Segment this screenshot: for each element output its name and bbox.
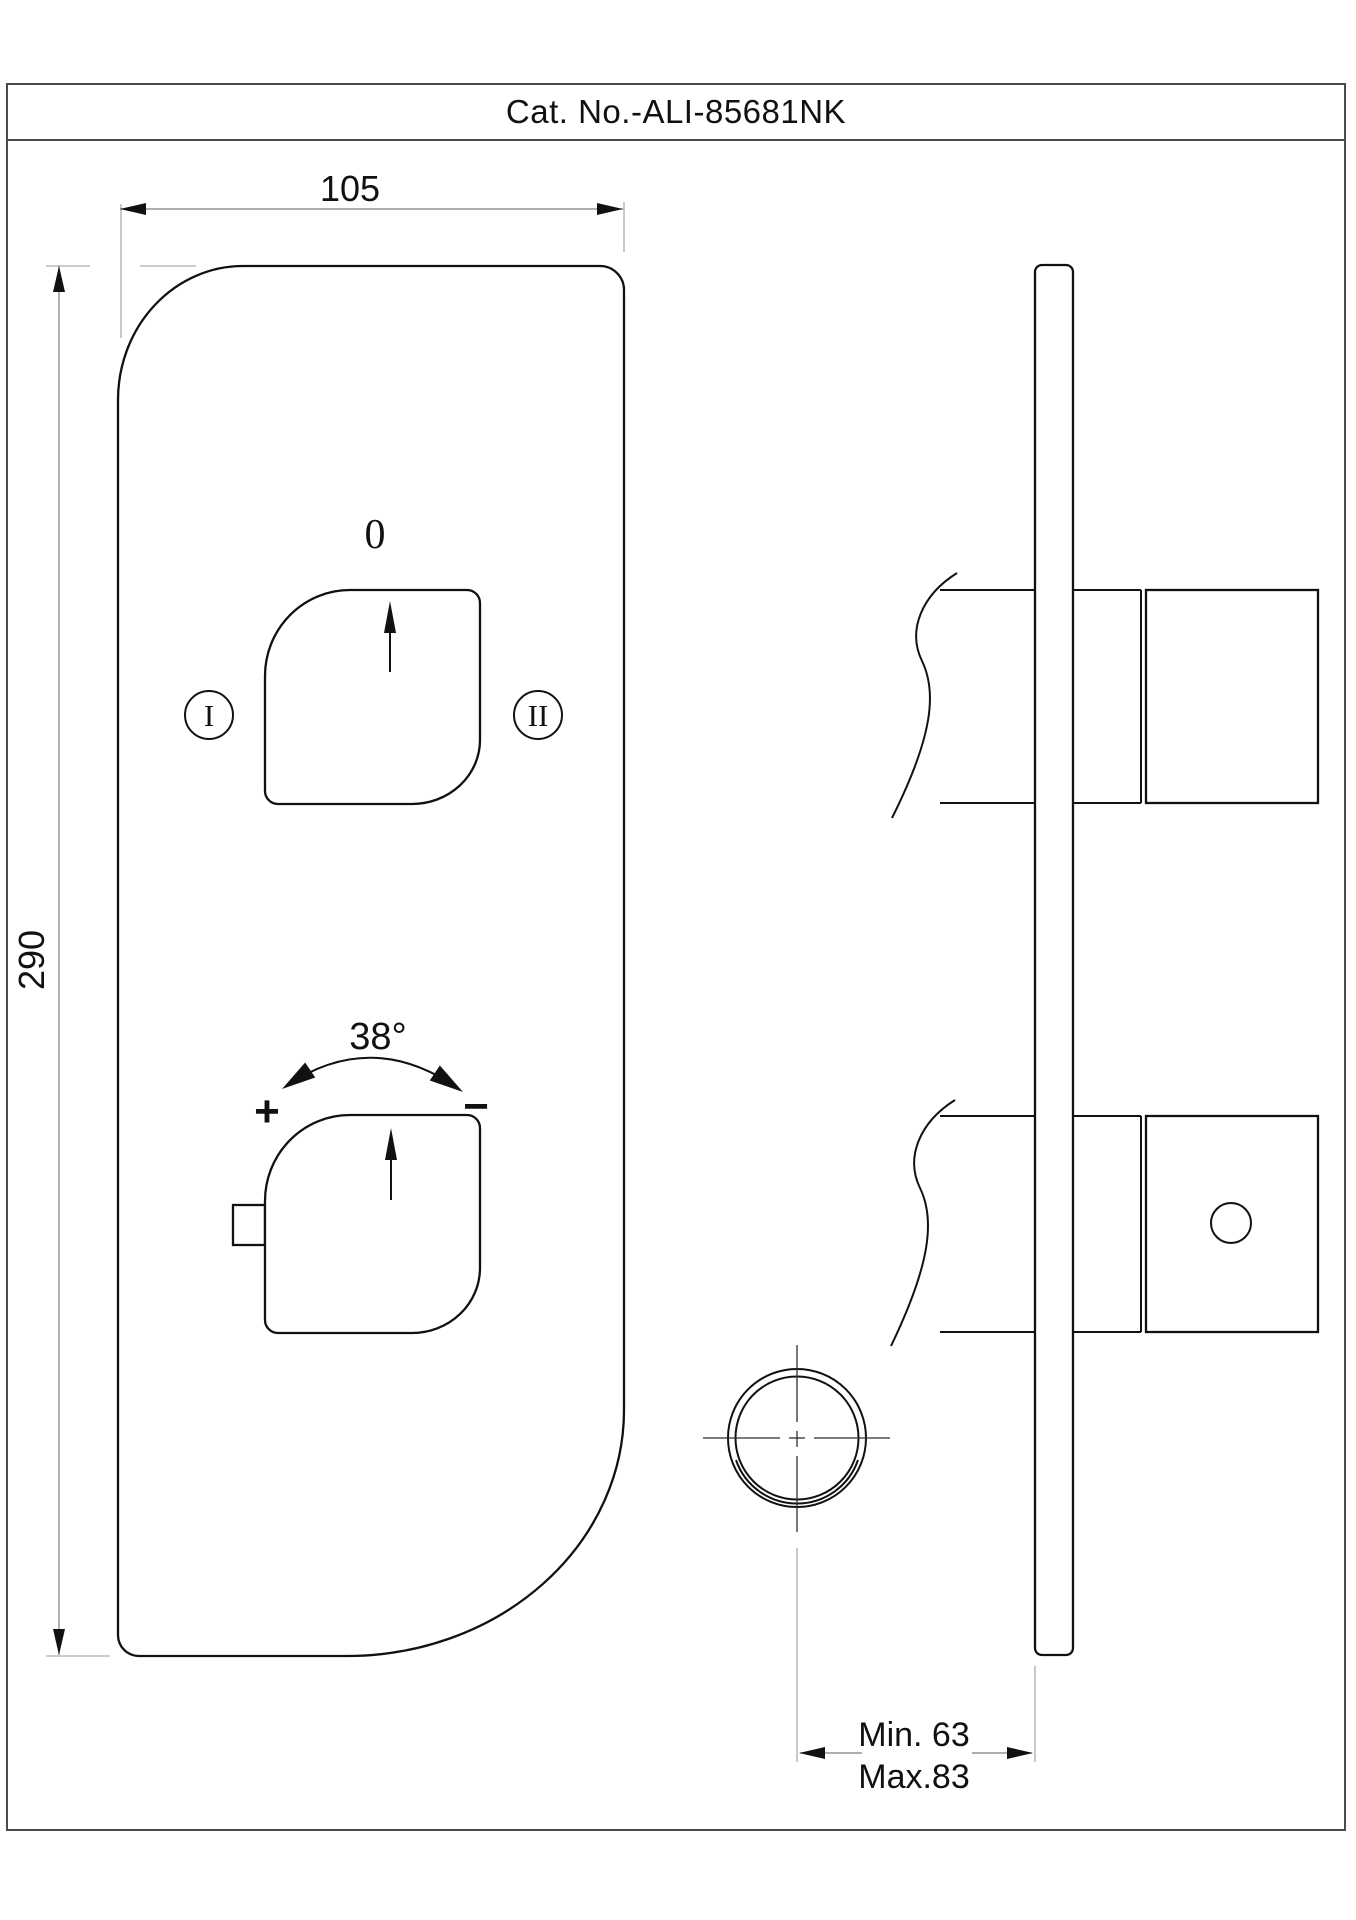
diverter-handle-profile (1146, 590, 1318, 803)
depth-max-label: Max.83 (858, 1758, 970, 1796)
temperature-knob-outline (265, 1115, 480, 1333)
height-dimension-label: 290 (11, 930, 52, 990)
diverter-knob-outline (265, 590, 480, 804)
wall-plate-profile (1035, 265, 1073, 1655)
colder-label: − (463, 1082, 489, 1131)
width-dimension-label: 105 (320, 168, 380, 209)
height-arrow-top (53, 266, 65, 292)
upper-body-break-line (892, 573, 957, 818)
depth-min-label: Min. 63 (858, 1716, 970, 1754)
rotation-angle-label: 38° (349, 1016, 406, 1058)
diverter-off-label: 0 (365, 512, 386, 558)
technical-drawing: 105 290 0 I II 38° + − (0, 0, 1356, 1920)
width-arrow-right (597, 203, 623, 215)
width-arrow-left (120, 203, 146, 215)
height-arrow-bottom (53, 1629, 65, 1655)
outlet-two-label: II (528, 698, 549, 733)
drawing-sheet: Cat. No.-ALI-85681NK 105 290 0 I II (0, 0, 1356, 1920)
hotter-label: + (254, 1087, 280, 1136)
depth-arrow-left (799, 1747, 825, 1759)
faceplate-outline (118, 266, 624, 1656)
temperature-knob-safety-button (233, 1205, 265, 1245)
temperature-handle-profile (1146, 1116, 1318, 1332)
outlet-one-label: I (204, 698, 214, 733)
depth-arrow-right (1007, 1747, 1033, 1759)
lower-body-break-line (891, 1100, 955, 1346)
